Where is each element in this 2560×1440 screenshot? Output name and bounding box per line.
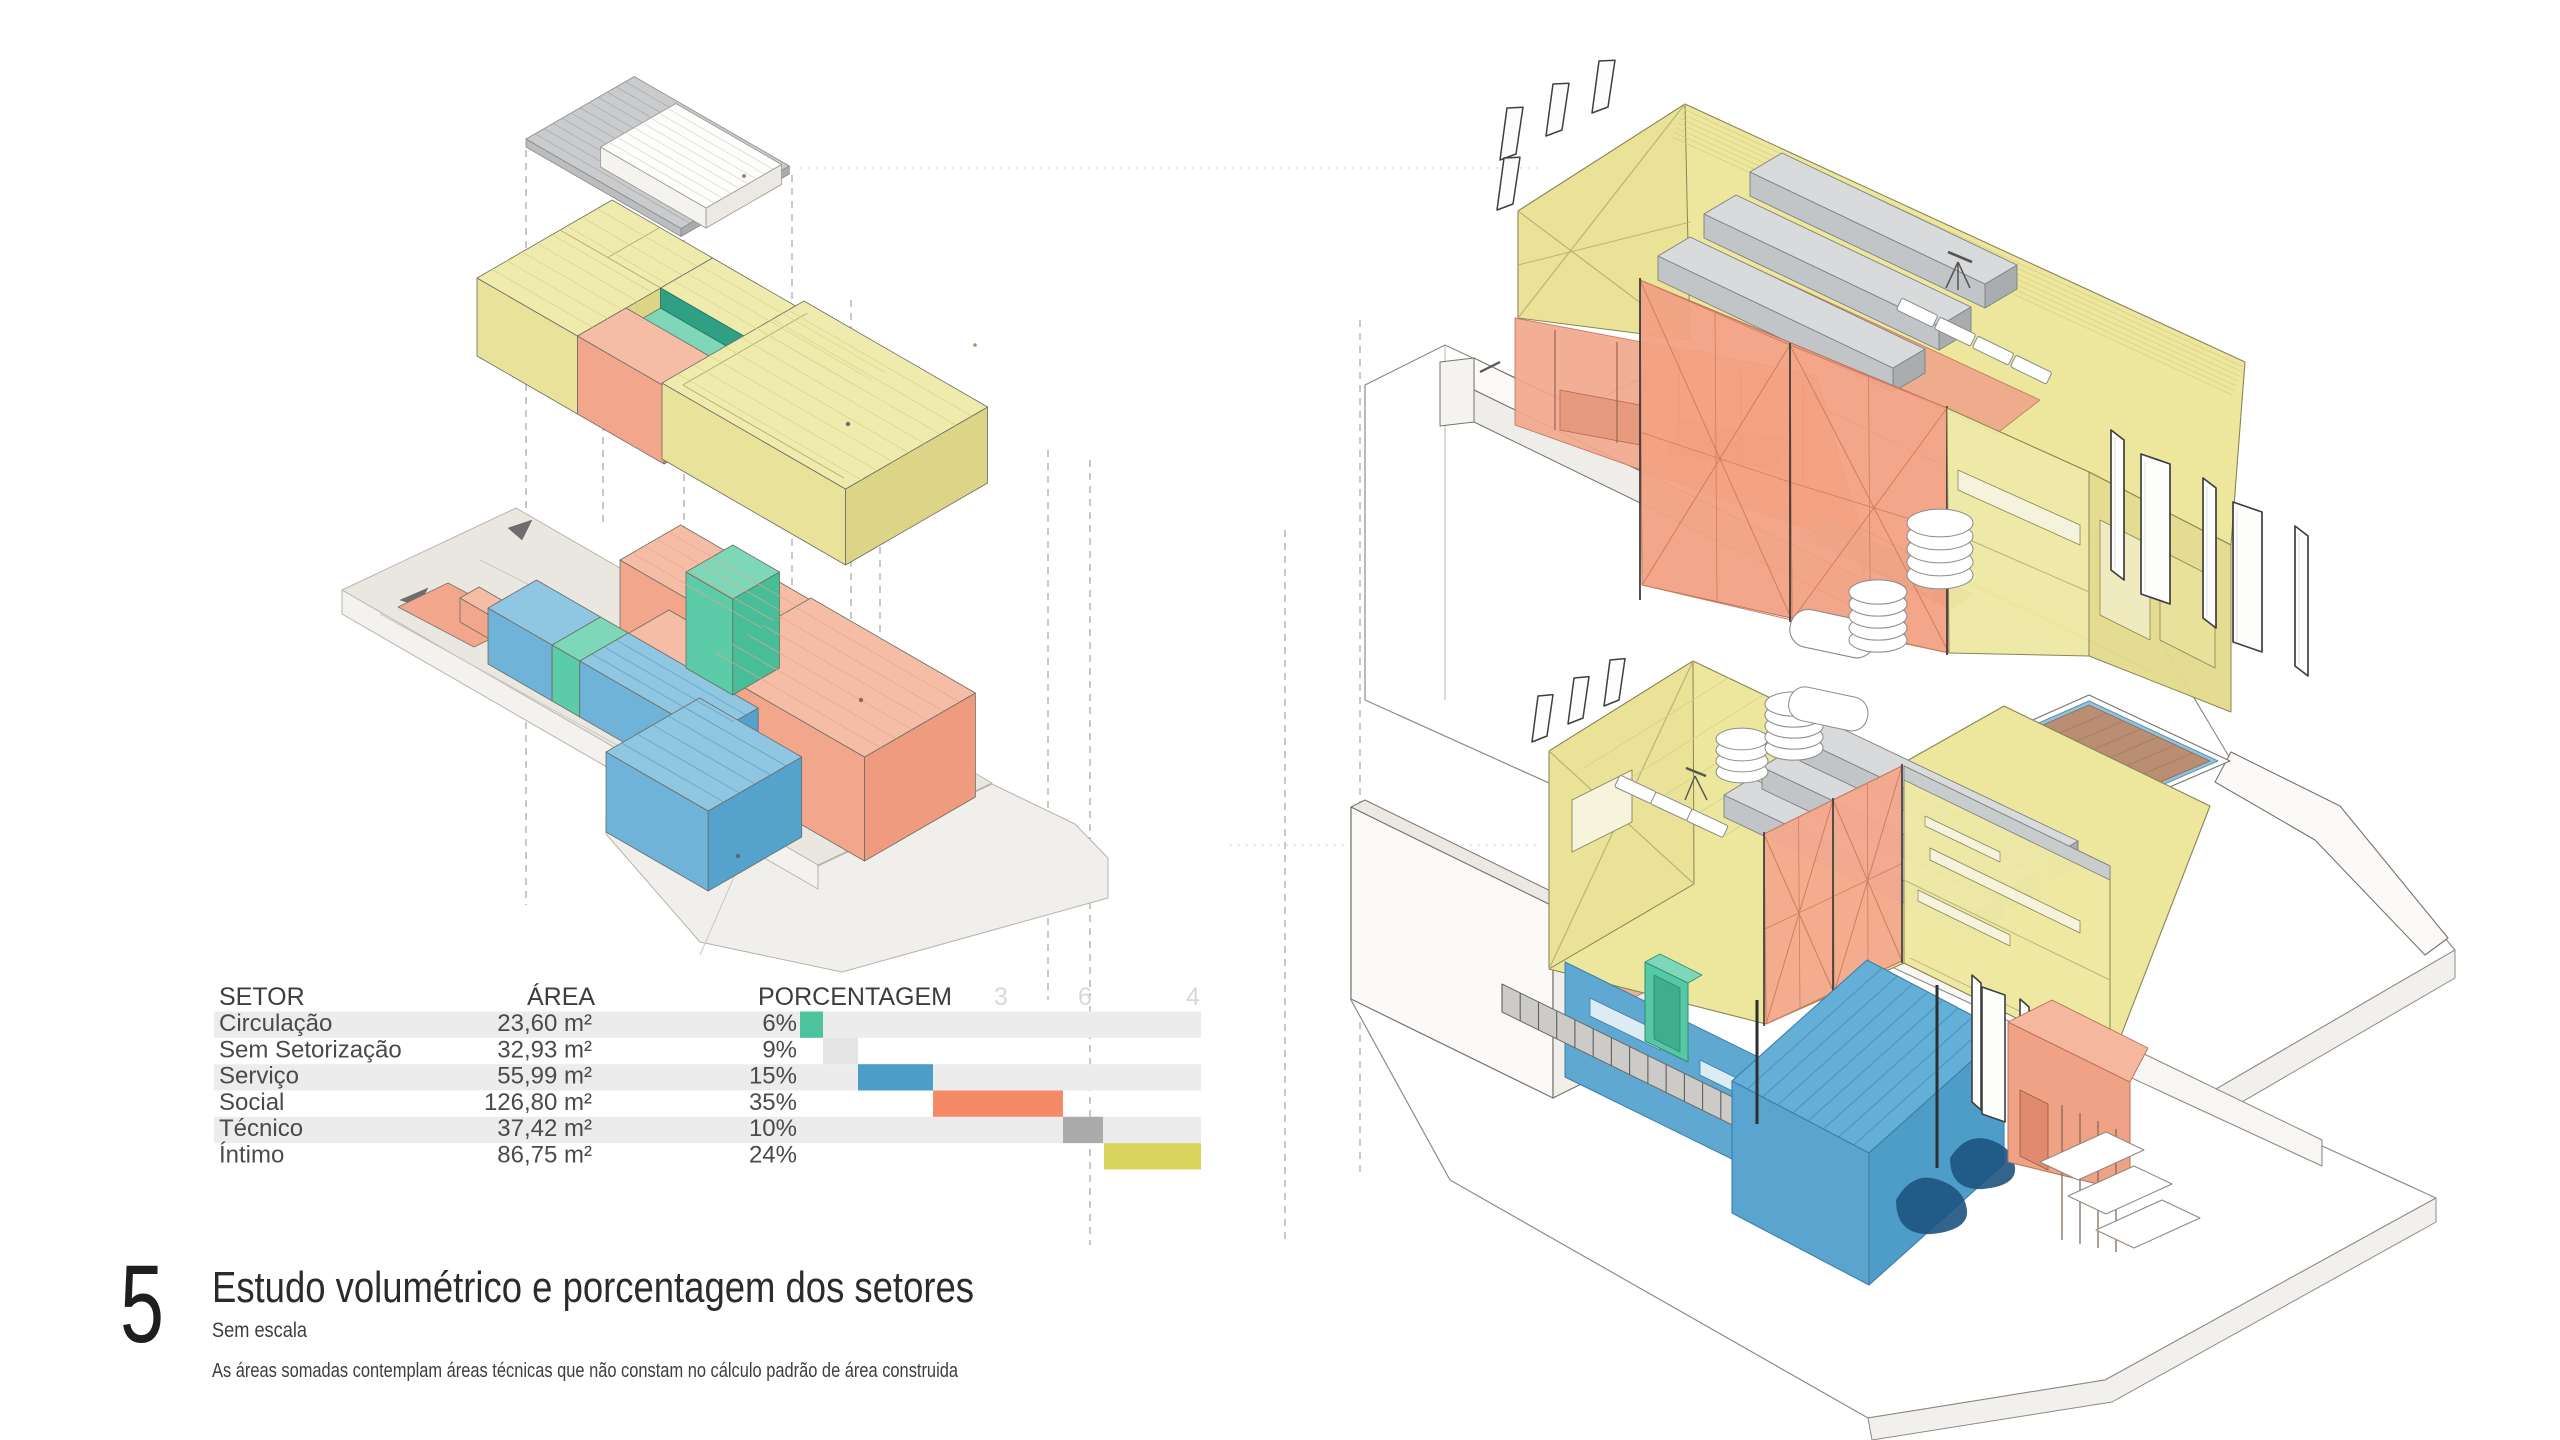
svg-text:3: 3 bbox=[994, 983, 1008, 1011]
svg-text:24%: 24% bbox=[749, 1142, 797, 1169]
svg-text:As áreas somadas contemplam ár: As áreas somadas contemplam áreas técnic… bbox=[212, 1360, 959, 1382]
svg-text:Serviço: Serviço bbox=[219, 1063, 299, 1090]
svg-text:23,60 m²: 23,60 m² bbox=[497, 1010, 592, 1037]
svg-text:6: 6 bbox=[1078, 983, 1092, 1011]
svg-text:6%: 6% bbox=[762, 1010, 797, 1037]
svg-text:Estudo volumétrico e porcentag: Estudo volumétrico e porcentagem dos set… bbox=[212, 1263, 974, 1312]
svg-text:126,80 m²: 126,80 m² bbox=[484, 1089, 592, 1116]
svg-text:PORCENTAGEM: PORCENTAGEM bbox=[758, 983, 952, 1011]
svg-text:55,99 m²: 55,99 m² bbox=[497, 1063, 592, 1090]
svg-text:4: 4 bbox=[1186, 983, 1200, 1011]
svg-text:ÁREA: ÁREA bbox=[527, 982, 595, 1011]
svg-text:Social: Social bbox=[219, 1089, 284, 1116]
svg-text:Sem escala: Sem escala bbox=[212, 1319, 307, 1342]
svg-text:Íntimo: Íntimo bbox=[219, 1142, 284, 1169]
svg-text:Técnico: Técnico bbox=[219, 1115, 303, 1142]
svg-text:Circulação: Circulação bbox=[219, 1010, 332, 1037]
svg-text:37,42 m²: 37,42 m² bbox=[497, 1115, 592, 1142]
svg-text:9%: 9% bbox=[762, 1036, 797, 1063]
svg-text:35%: 35% bbox=[749, 1089, 797, 1116]
svg-text:15%: 15% bbox=[749, 1063, 797, 1090]
svg-text:86,75 m²: 86,75 m² bbox=[497, 1142, 592, 1169]
svg-text:32,93 m²: 32,93 m² bbox=[497, 1036, 592, 1063]
svg-text:Sem Setorização: Sem Setorização bbox=[219, 1036, 402, 1063]
svg-text:5: 5 bbox=[120, 1243, 164, 1366]
svg-text:SETOR: SETOR bbox=[219, 983, 305, 1011]
svg-text:10%: 10% bbox=[749, 1115, 797, 1142]
